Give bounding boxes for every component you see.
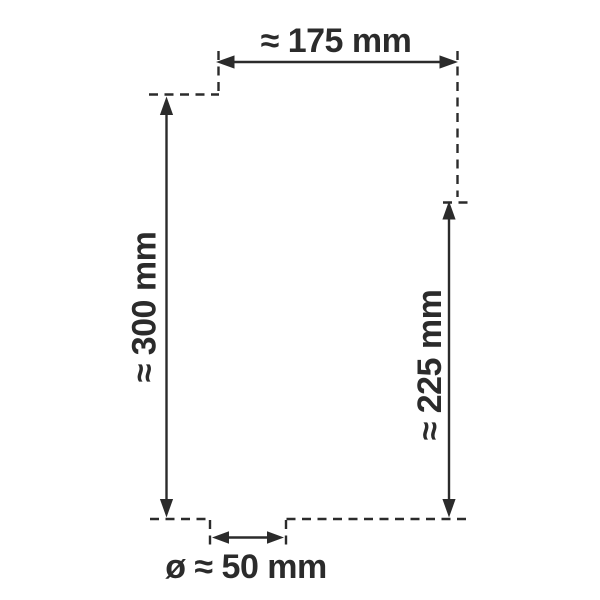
base-diameter-dimension: ø ≈ 50 mm [150, 519, 468, 586]
overall-height-dimension-label: ≈ 300 mm [126, 232, 164, 383]
dimension-diagram-canvas: ≈ 175 mm ≈ 300 mm ≈ 225 mm ø ≈ 50 mm [0, 0, 600, 600]
arrowhead-left-icon [212, 531, 229, 544]
dimension-diagram: ≈ 175 mm ≈ 300 mm ≈ 225 mm ø ≈ 50 mm [0, 0, 600, 600]
width-dimension: ≈ 175 mm [149, 22, 458, 197]
arrowhead-up-icon [442, 201, 455, 220]
arrowhead-right-icon [440, 55, 459, 68]
arrowhead-right-icon [267, 531, 284, 544]
right-height-dimension-label: ≈ 225 mm [411, 290, 449, 441]
arrowhead-down-icon [442, 499, 455, 518]
arrowhead-up-icon [160, 97, 173, 116]
right-height-dimension: ≈ 225 mm [411, 201, 471, 518]
width-dimension-label: ≈ 175 mm [261, 22, 412, 60]
arrowhead-down-icon [160, 499, 173, 518]
overall-height-dimension: ≈ 300 mm [126, 97, 174, 518]
base-diameter-dimension-label: ø ≈ 50 mm [165, 548, 327, 586]
